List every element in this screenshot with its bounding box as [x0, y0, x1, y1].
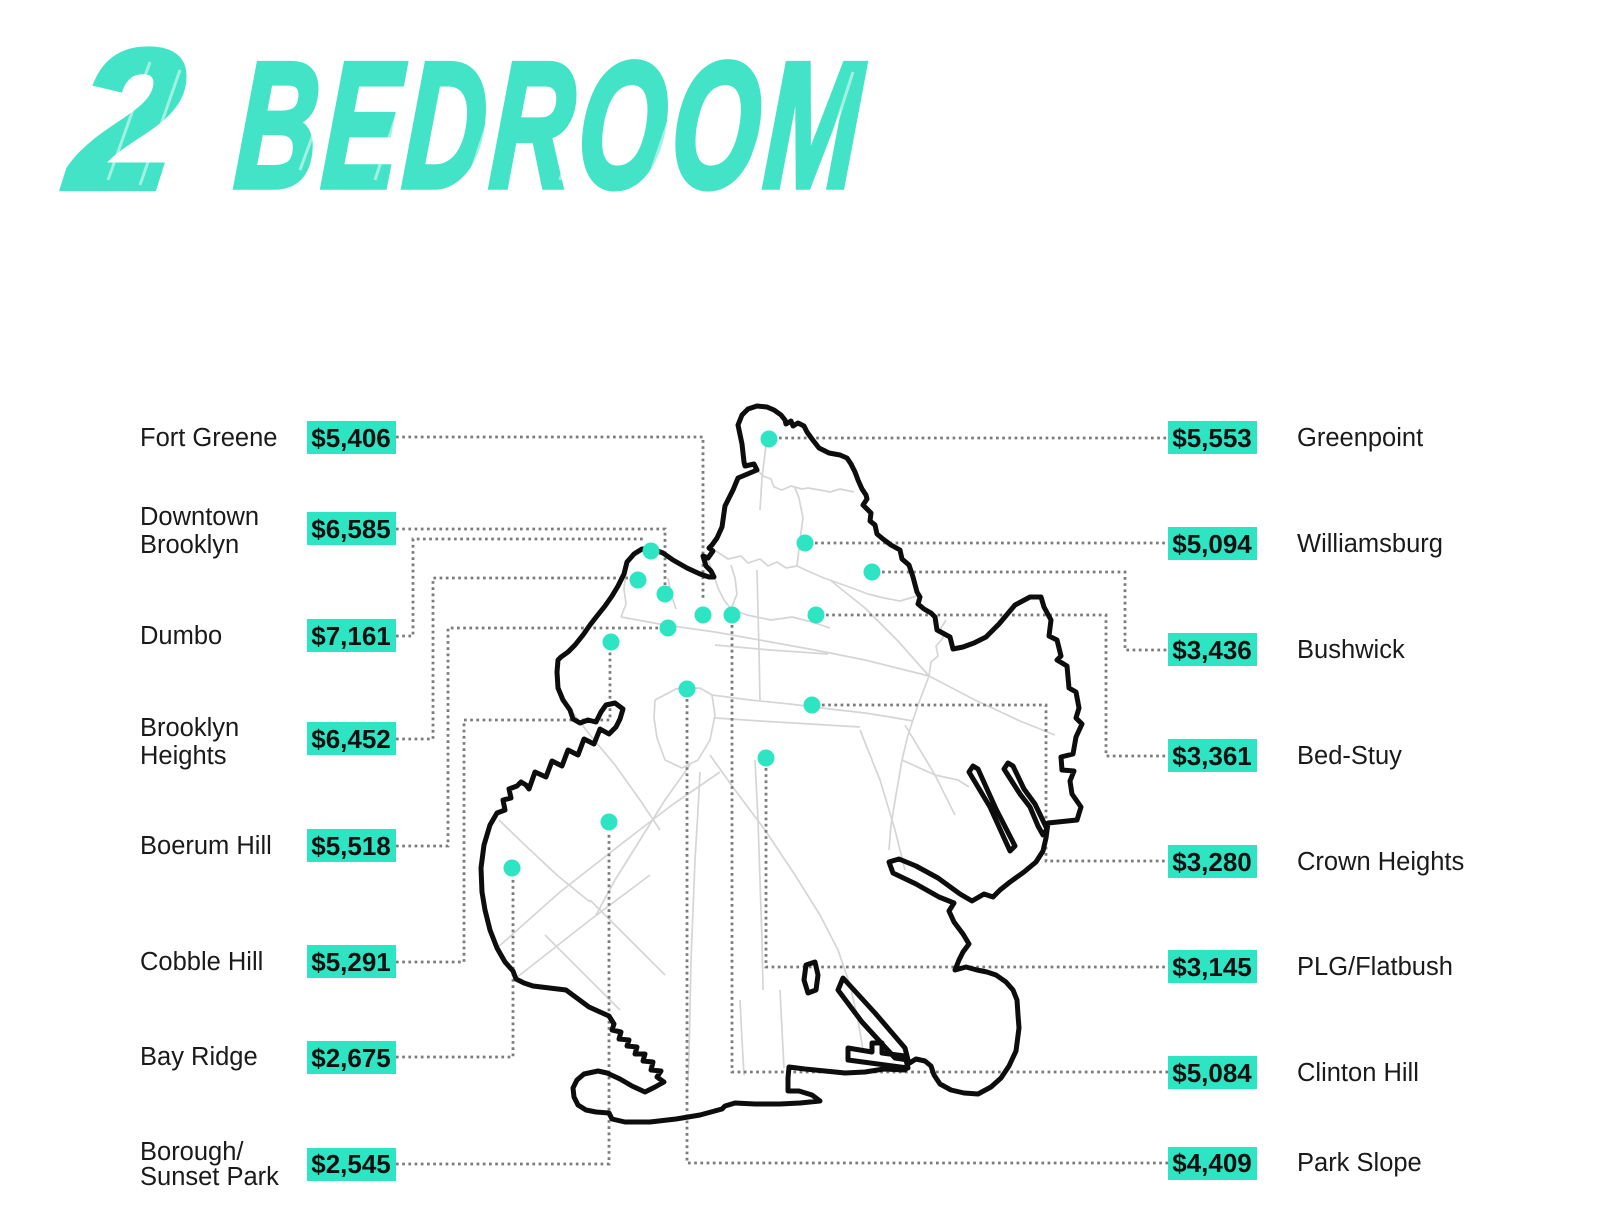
- svg-text:2: 2: [56, 10, 194, 231]
- svg-text:$3,145: $3,145: [1172, 952, 1252, 982]
- svg-text:Dumbo: Dumbo: [140, 622, 222, 650]
- svg-text:Downtown: Downtown: [140, 503, 259, 531]
- svg-text:Boerum Hill: Boerum Hill: [140, 832, 272, 860]
- svg-text:Bed-Stuy: Bed-Stuy: [1297, 742, 1402, 770]
- svg-text:Bushwick: Bushwick: [1297, 636, 1405, 664]
- svg-text:Clinton Hill: Clinton Hill: [1297, 1059, 1419, 1087]
- svg-text:$4,409: $4,409: [1172, 1148, 1252, 1178]
- svg-text:$5,094: $5,094: [1172, 529, 1252, 559]
- svg-text:$6,585: $6,585: [311, 514, 391, 544]
- svg-text:BEDROOM: BEDROOM: [230, 24, 872, 225]
- svg-text:$2,675: $2,675: [311, 1043, 391, 1073]
- svg-text:$6,452: $6,452: [311, 724, 391, 754]
- svg-text:Borough/: Borough/: [140, 1138, 244, 1166]
- svg-text:$3,361: $3,361: [1172, 741, 1252, 771]
- svg-text:Fort Greene: Fort Greene: [140, 424, 277, 452]
- svg-text:Brooklyn: Brooklyn: [140, 531, 239, 559]
- svg-text:Park Slope: Park Slope: [1297, 1149, 1422, 1177]
- svg-text:Sunset Park: Sunset Park: [140, 1163, 279, 1191]
- svg-text:$5,291: $5,291: [311, 947, 391, 977]
- svg-text:$7,161: $7,161: [311, 621, 391, 651]
- svg-text:Brooklyn: Brooklyn: [140, 714, 239, 742]
- svg-text:$3,436: $3,436: [1172, 635, 1252, 665]
- svg-text:Williamsburg: Williamsburg: [1297, 530, 1443, 558]
- svg-text:$3,280: $3,280: [1172, 847, 1252, 877]
- svg-text:$5,553: $5,553: [1172, 423, 1252, 453]
- svg-text:$5,084: $5,084: [1172, 1058, 1252, 1088]
- svg-text:$5,518: $5,518: [311, 831, 391, 861]
- svg-text:$2,545: $2,545: [311, 1149, 391, 1179]
- svg-text:Heights: Heights: [140, 742, 226, 770]
- svg-text:$5,406: $5,406: [311, 423, 391, 453]
- svg-text:Greenpoint: Greenpoint: [1297, 424, 1423, 452]
- svg-text:Crown Heights: Crown Heights: [1297, 848, 1464, 876]
- svg-text:Bay Ridge: Bay Ridge: [140, 1043, 258, 1071]
- svg-text:Cobble Hill: Cobble Hill: [140, 948, 263, 976]
- svg-text:PLG/Flatbush: PLG/Flatbush: [1297, 953, 1453, 981]
